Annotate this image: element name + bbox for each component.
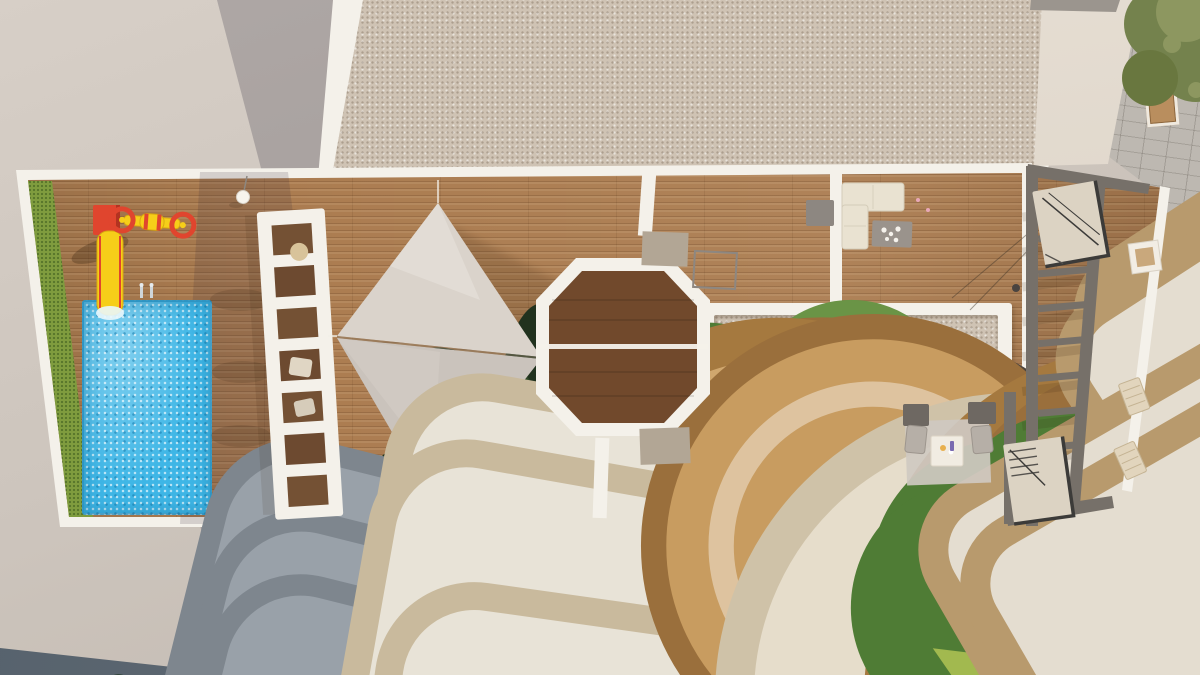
stairwell-top [1032, 181, 1108, 267]
planter-box [968, 402, 996, 424]
sofa-side [842, 205, 868, 249]
column-slab-top [641, 231, 688, 267]
rooftop-terrace-render [0, 0, 1200, 675]
dark-vase [1012, 284, 1020, 292]
octagon-center-seam [538, 344, 708, 349]
slide-splash-pad [96, 306, 124, 320]
armchair [905, 425, 928, 454]
pool-ladder [140, 283, 154, 298]
octagon-walkway-bottom [593, 438, 610, 518]
octagon-walkway-top [638, 174, 656, 237]
planter-box [903, 404, 929, 426]
scene-overlay [0, 0, 1200, 675]
tray-items [950, 441, 954, 451]
stairwell-bottom [1003, 436, 1074, 524]
column-slab-bottom [639, 427, 690, 465]
agave-pot [806, 200, 834, 226]
street-tree-top-right [1122, 0, 1200, 106]
spinner-toy [110, 208, 194, 237]
armchair [971, 425, 994, 454]
framed-mirror [1128, 240, 1162, 274]
tray-table [931, 436, 963, 466]
string-lights [952, 225, 1038, 310]
globe-lamp [229, 176, 250, 208]
pergola-chair [288, 357, 312, 378]
